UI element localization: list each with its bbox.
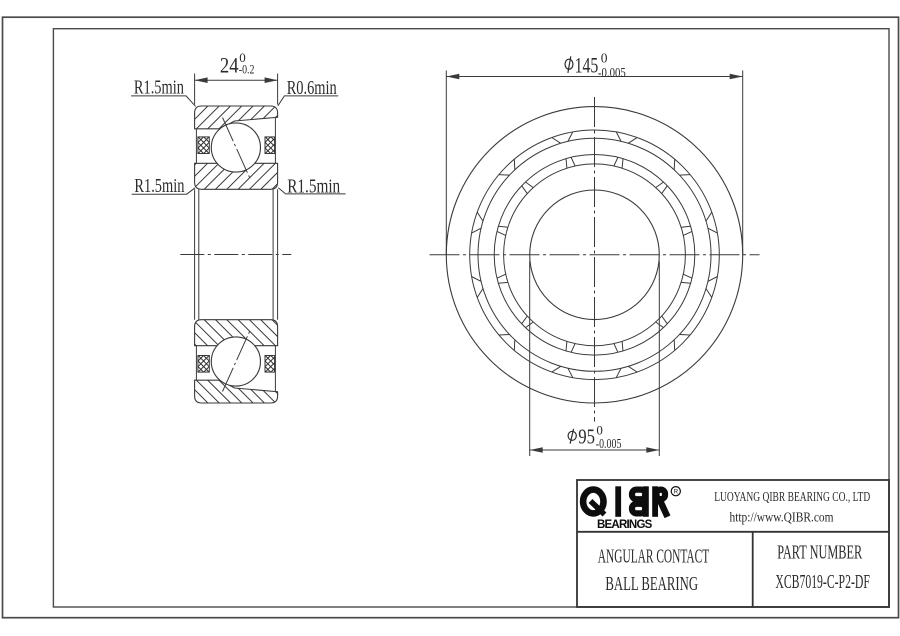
svg-text:95: 95 [578,424,595,448]
svg-text:145: 145 [575,53,599,78]
svg-text:BEARINGS: BEARINGS [597,519,654,531]
svg-text:R: R [674,489,679,495]
svg-text:R1.5min: R1.5min [134,76,184,98]
svg-text:0: 0 [601,50,608,65]
svg-text:ANGULAR CONTACT: ANGULAR CONTACT [598,545,710,567]
svg-text:R1.5min: R1.5min [134,175,184,197]
svg-text:PART NUMBER: PART NUMBER [777,542,862,564]
svg-text:LUOYANG QIBR BEARING CO., LTD: LUOYANG QIBR BEARING CO., LTD [714,489,870,504]
svg-text:-0.005: -0.005 [598,65,626,80]
svg-text:24: 24 [220,52,239,77]
svg-text:http://www.QIBR.com: http://www.QIBR.com [730,510,834,525]
svg-text:-0.2: -0.2 [239,61,255,76]
svg-text:-0.005: -0.005 [596,436,622,451]
svg-text:BALL BEARING: BALL BEARING [605,573,698,595]
svg-text:XCB7019-C-P2-DF: XCB7019-C-P2-DF [775,571,870,593]
